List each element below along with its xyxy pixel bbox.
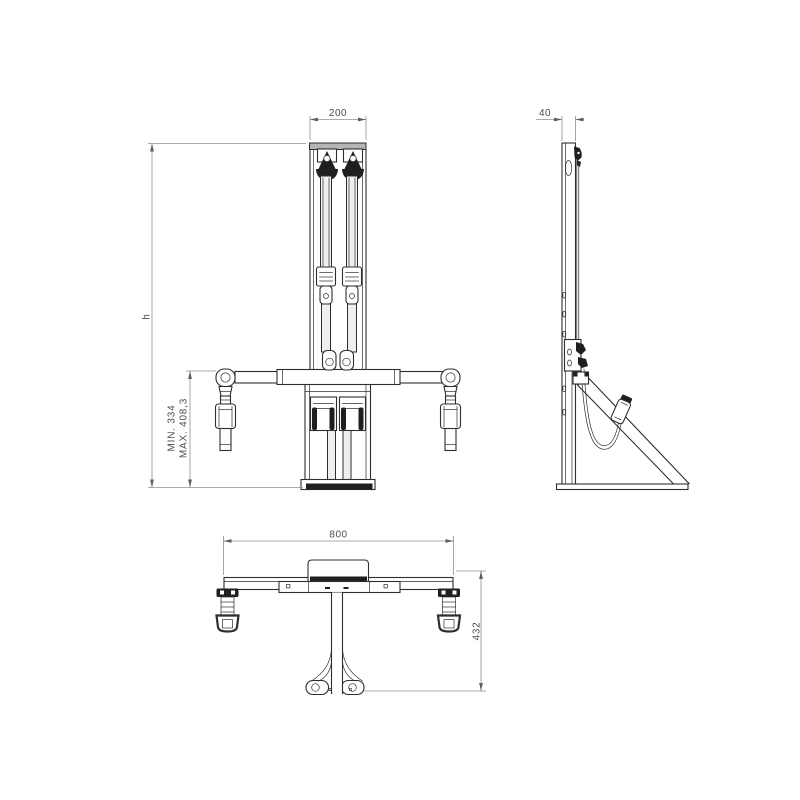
hanging-buckle-right — [441, 387, 461, 451]
dim-label-h: h — [142, 313, 153, 319]
dim-label-200: 200 — [329, 108, 347, 119]
harness-frame-drawing: 200 h MIN. 334 MAX. 408,3 — [0, 0, 800, 800]
dim-label-max: MAX. 408,3 — [179, 398, 190, 458]
foot-assembly — [306, 593, 364, 695]
technical-drawing-page: 200 h MIN. 334 MAX. 408,3 — [0, 0, 800, 800]
crossbar-sleeve — [277, 370, 400, 385]
hanging-buckle-left — [216, 387, 236, 451]
crossbar — [216, 351, 460, 387]
dimension-side-depth: 40 — [536, 108, 584, 141]
bottom-buckle-left — [217, 589, 239, 632]
belt-adjuster-right — [343, 267, 362, 286]
shoulder-belt-right — [343, 176, 362, 352]
side-view: 40 — [536, 108, 689, 490]
front-view: 200 h MIN. 334 MAX. 408,3 — [142, 108, 461, 490]
mounting-plate — [279, 582, 400, 593]
bottom-buckle-right — [438, 589, 460, 632]
bottom-view: 800 432 — [217, 530, 487, 695]
shoulder-belt-left — [317, 176, 336, 352]
diagonal-brace — [578, 379, 690, 488]
dim-label-800: 800 — [329, 530, 347, 541]
dim-label-40: 40 — [539, 108, 551, 119]
dimension-buckle-drop: MIN. 334 MAX. 408,3 — [167, 371, 217, 488]
belt-adjuster-left — [317, 267, 336, 286]
dimension-front-width: 200 — [310, 108, 366, 140]
front-lower-column — [301, 385, 375, 490]
side-base — [557, 484, 689, 490]
side-column — [562, 143, 576, 486]
dim-label-min: MIN. 334 — [167, 405, 178, 452]
dim-label-432: 432 — [472, 621, 483, 640]
